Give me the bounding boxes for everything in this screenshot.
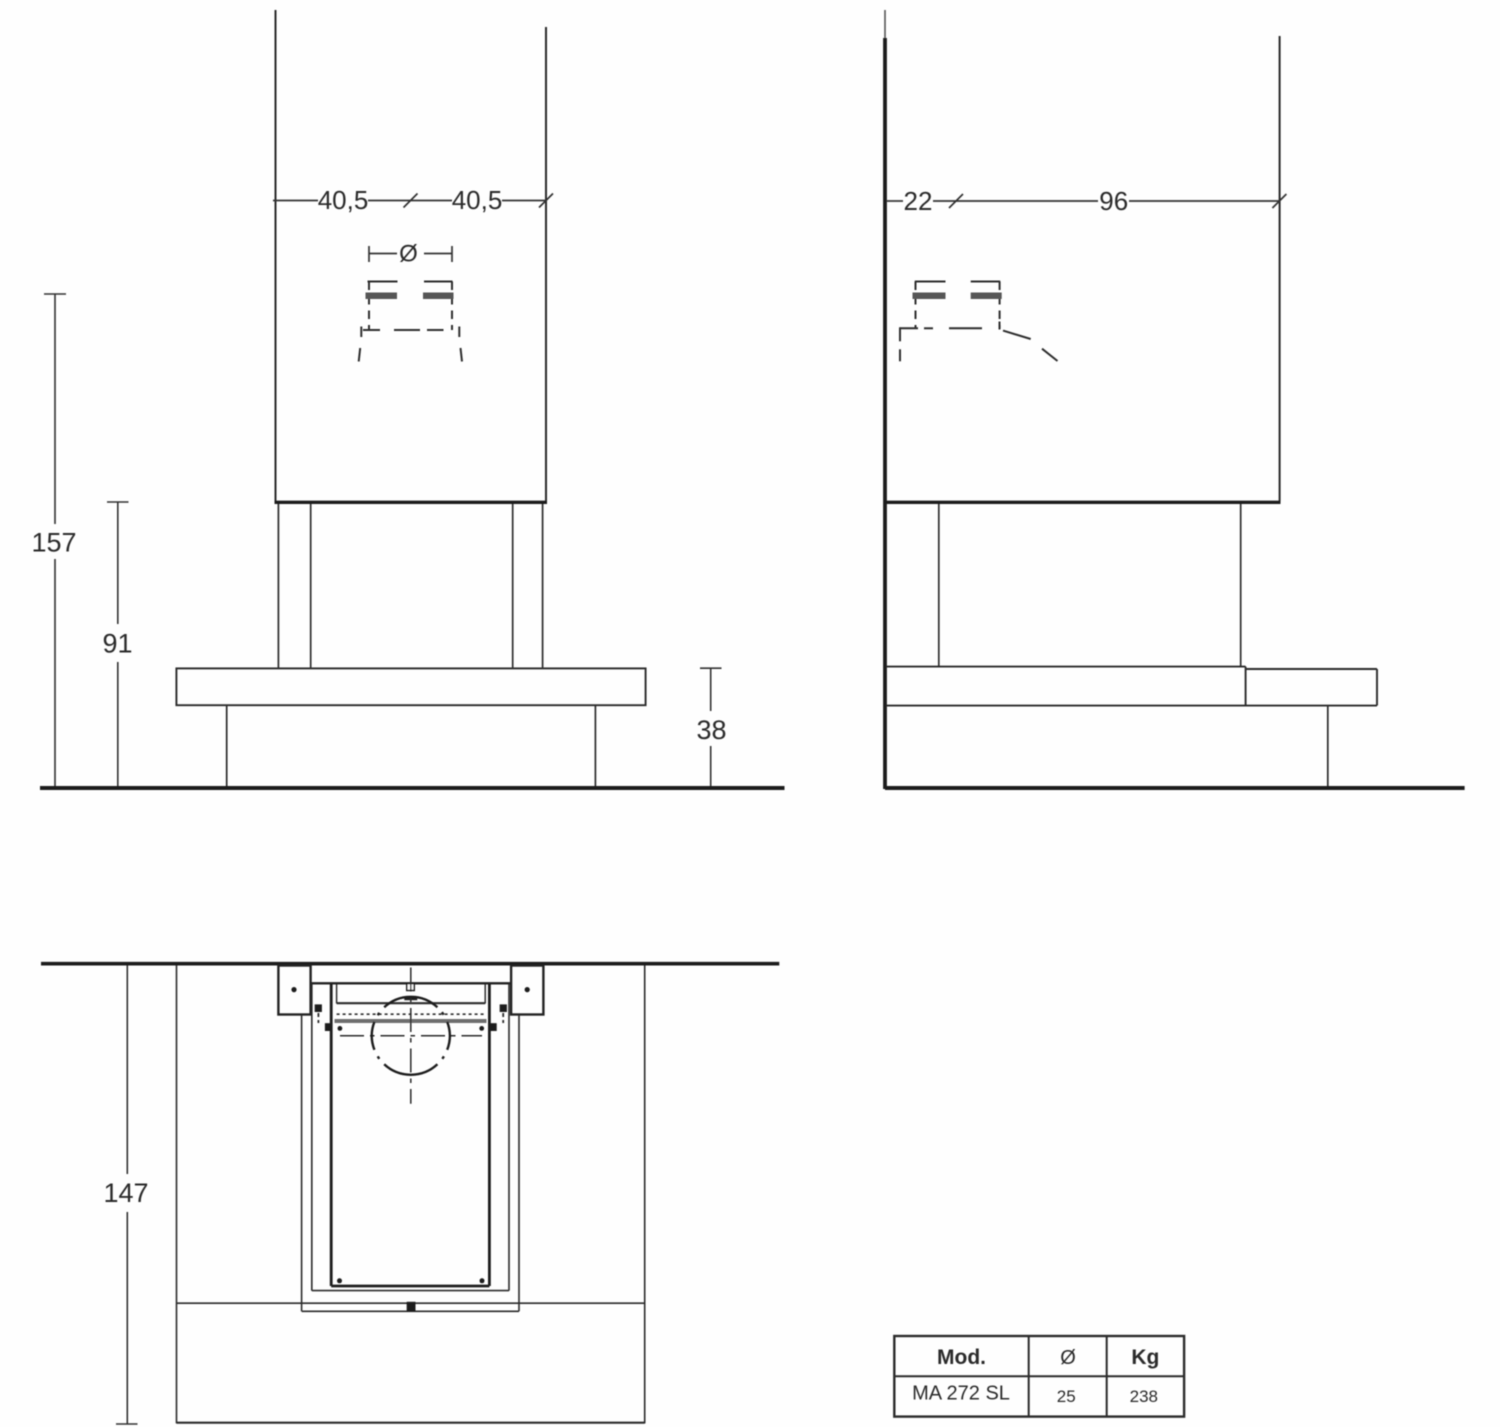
- svg-text:25: 25: [1057, 1387, 1076, 1406]
- svg-text:91: 91: [102, 629, 132, 659]
- svg-text:MA 272 SL: MA 272 SL: [912, 1383, 1010, 1405]
- svg-text:238: 238: [1130, 1387, 1158, 1406]
- svg-text:Kg: Kg: [1131, 1346, 1159, 1369]
- svg-text:40,5: 40,5: [318, 185, 369, 215]
- svg-text:40,5: 40,5: [452, 185, 503, 215]
- svg-text:Mod.: Mod.: [937, 1346, 986, 1369]
- svg-text:38: 38: [696, 715, 726, 745]
- svg-text:157: 157: [31, 528, 76, 558]
- svg-text:96: 96: [1099, 186, 1128, 216]
- svg-text:22: 22: [904, 186, 933, 216]
- svg-text:Ø: Ø: [1060, 1347, 1076, 1369]
- svg-text:Ø: Ø: [399, 241, 418, 268]
- svg-text:147: 147: [103, 1178, 148, 1208]
